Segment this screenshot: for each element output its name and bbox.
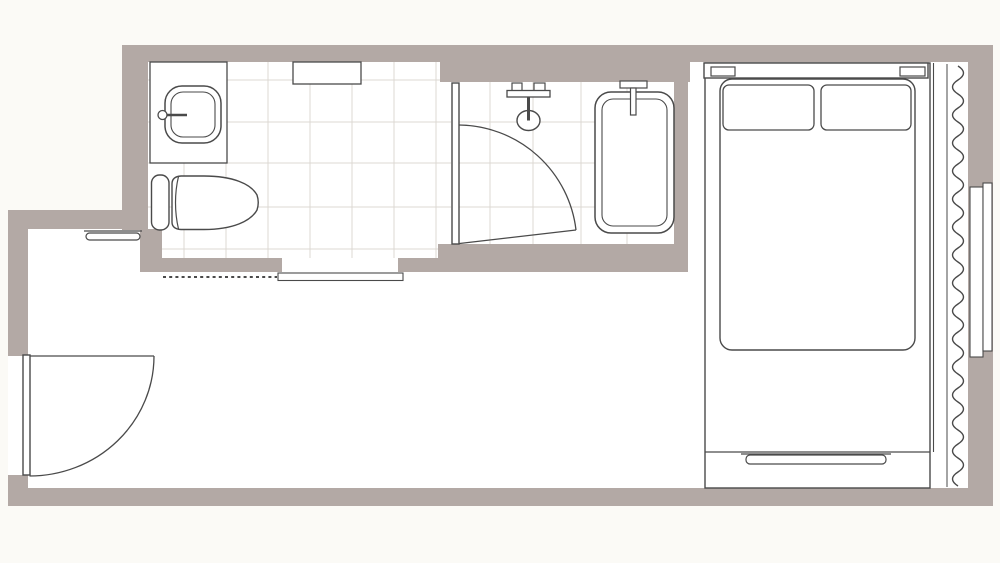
wall-vanity-west xyxy=(122,45,148,230)
wall-vanity-south xyxy=(140,258,282,272)
shower-knob-left xyxy=(512,83,522,91)
wall-south xyxy=(8,488,993,506)
bath-filler-stem xyxy=(631,88,637,115)
vanity-shelf xyxy=(293,62,361,84)
bed-runner xyxy=(746,455,886,464)
toilet-bowl xyxy=(172,176,258,230)
wall-west xyxy=(8,210,28,356)
floor-plan-svg xyxy=(0,0,1000,563)
entrance-door-leaf xyxy=(23,355,30,475)
wall-north-bathroom xyxy=(440,45,690,82)
pillow-right xyxy=(821,85,911,130)
bed xyxy=(704,63,934,488)
headboard-cap-left xyxy=(711,67,735,76)
headboard-cap-right xyxy=(900,67,925,76)
toilet-tank xyxy=(152,175,170,230)
window xyxy=(970,183,992,357)
wall-bathroom-bedroom-divider xyxy=(674,45,688,272)
headboard xyxy=(704,63,928,78)
shower-knob-right xyxy=(534,83,545,91)
wall-sill-stub xyxy=(398,258,438,272)
console-shelf xyxy=(86,233,140,240)
wall-north-bedroom xyxy=(690,45,993,62)
pillow-left xyxy=(723,85,814,130)
faucet-knob-icon xyxy=(158,111,167,120)
floor-plan xyxy=(0,0,1000,563)
threshold-sill xyxy=(278,273,403,281)
bathroom-door-leaf xyxy=(452,83,459,244)
wall-entrance-jamb xyxy=(8,475,28,506)
wall-bathroom-south xyxy=(438,244,688,272)
window-pane-inner xyxy=(983,183,992,351)
bath-filler-bar xyxy=(620,81,647,88)
shower-mixer-bar xyxy=(507,91,550,98)
wall-north-vanity xyxy=(122,45,440,62)
window-pane-outer xyxy=(970,187,983,357)
